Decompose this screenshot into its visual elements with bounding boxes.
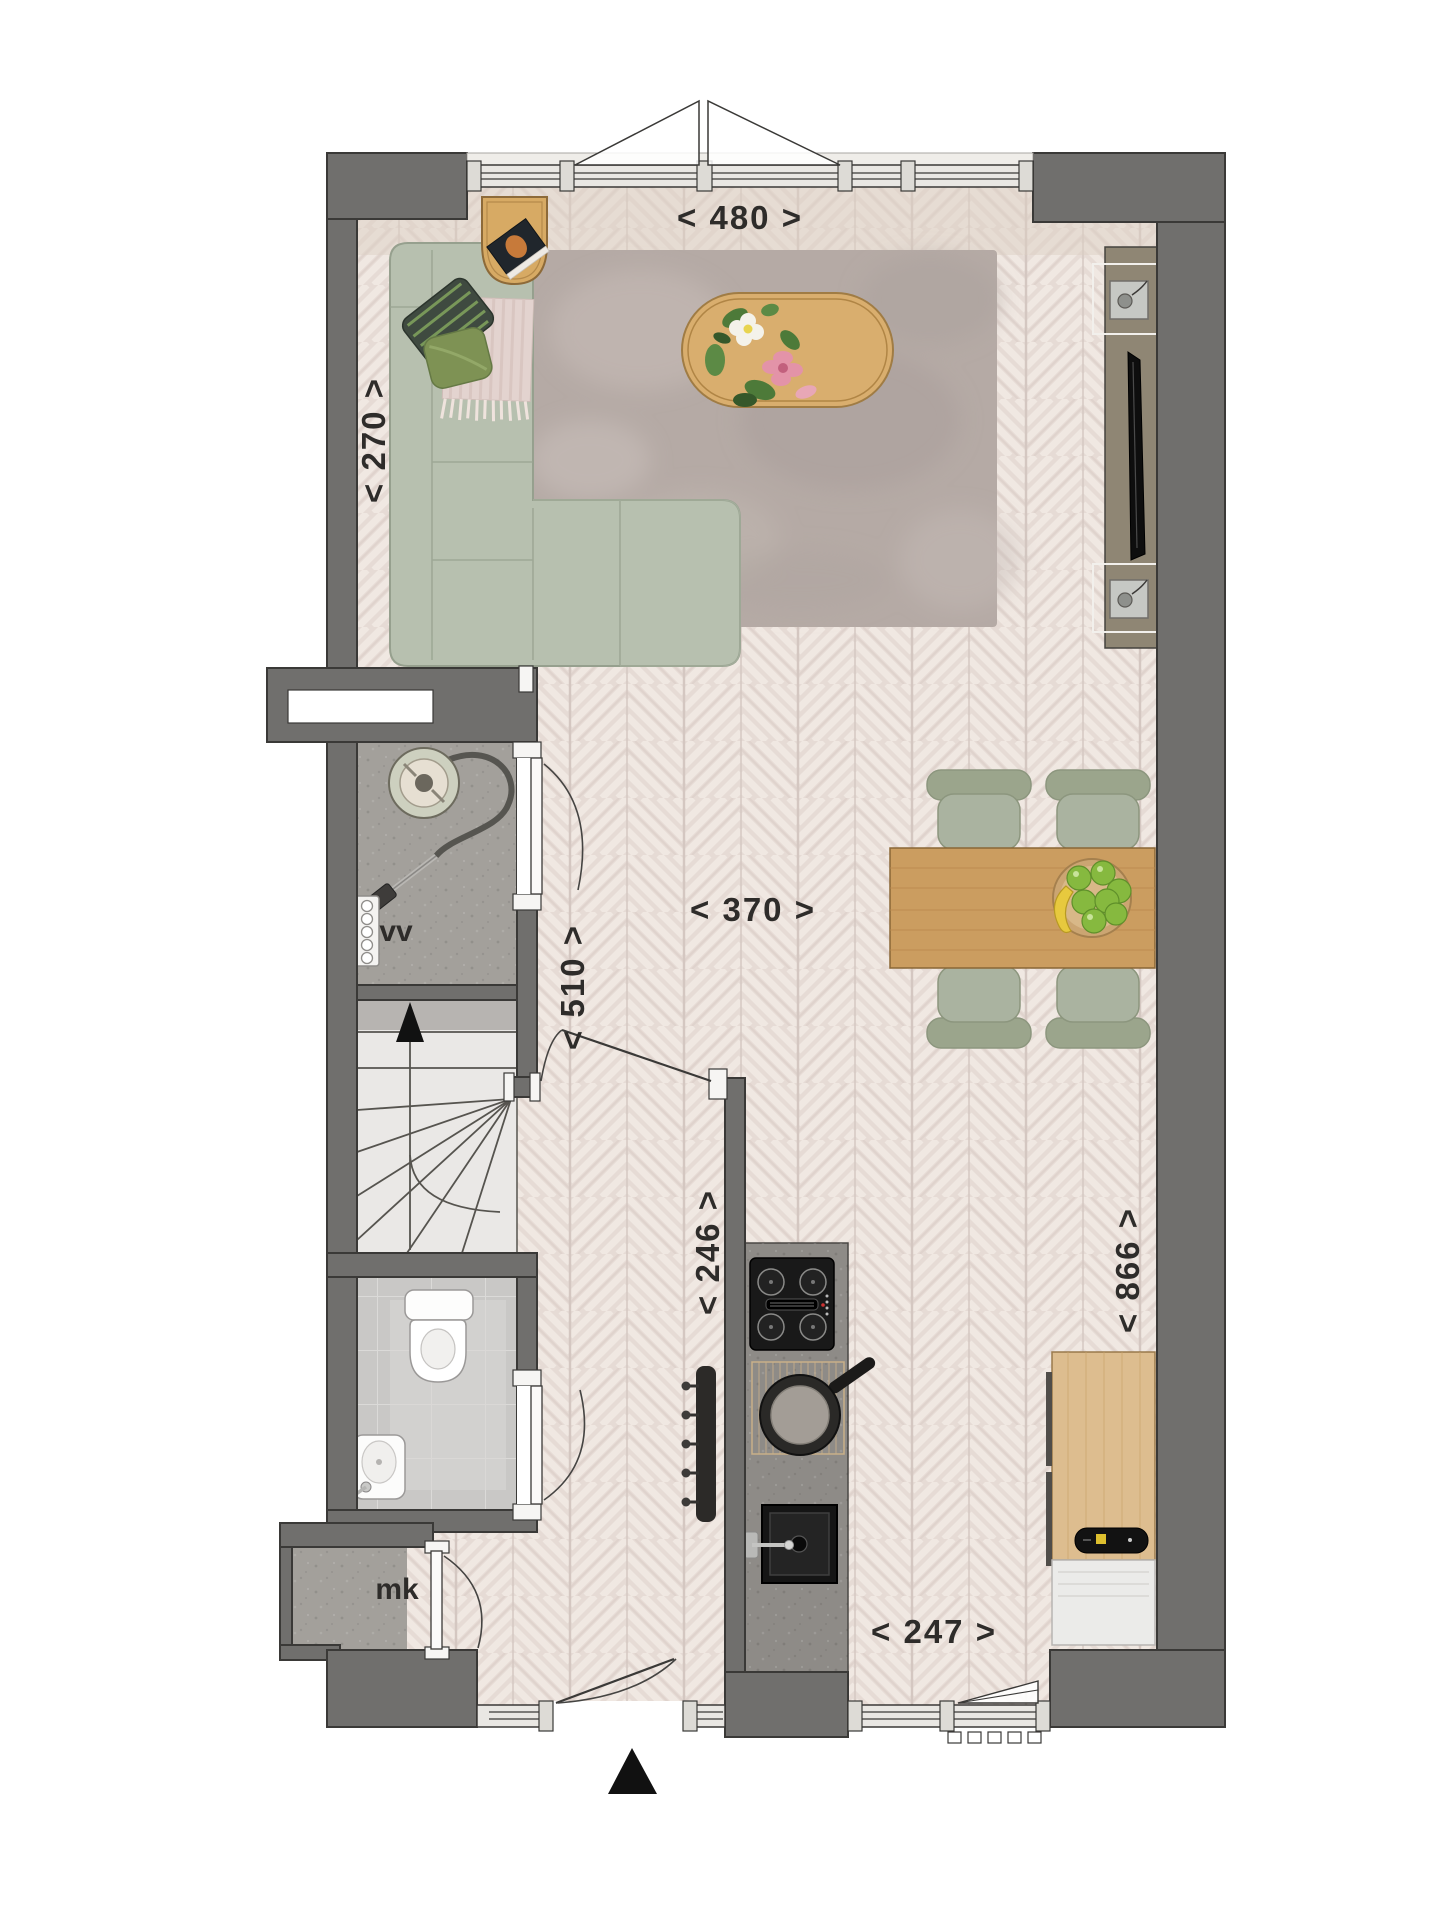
speaker — [1110, 281, 1148, 319]
fruit-bowl — [1053, 859, 1131, 937]
wall-bottom-right-block — [1050, 1650, 1225, 1727]
appliance — [1052, 1560, 1155, 1645]
dimension-kitchen-width: < 246 > — [689, 1189, 727, 1315]
entrance-door-gap — [551, 1701, 685, 1731]
coffee-table — [682, 293, 893, 407]
chair — [1046, 966, 1150, 1048]
toilet — [405, 1290, 473, 1382]
north-arrow — [608, 1748, 657, 1794]
window-band-top — [467, 101, 1033, 191]
meter-panel — [355, 896, 379, 966]
wall-top-left — [327, 153, 467, 219]
side-table — [482, 197, 549, 284]
wall-stairs-toilet — [327, 1253, 537, 1277]
cap-kitchen-wall — [709, 1069, 727, 1099]
floor-plan-page: < 480 > < 270 > < 510 > < 370 > < 246 > … — [0, 0, 1440, 1920]
dimension-top-width: < 480 > — [677, 199, 803, 237]
wall-niche — [288, 690, 433, 723]
coat-rack — [682, 1366, 717, 1522]
dimension-living-depth: < 270 > — [355, 377, 393, 503]
dimension-living-width: < 370 > — [690, 891, 816, 929]
chair — [1046, 770, 1150, 850]
dimension-hall-depth: < 510 > — [554, 924, 592, 1050]
desk-cabinet — [1046, 1352, 1155, 1645]
wall-mk-left — [280, 1547, 292, 1658]
chair — [927, 770, 1031, 850]
cap-living-wall — [519, 666, 533, 692]
wall-storage-stairs — [357, 985, 517, 1000]
dining-table — [890, 848, 1155, 968]
dimension-kitchen-front: < 247 > — [871, 1613, 997, 1651]
wall-kitchen-bottom-block — [725, 1672, 848, 1737]
wall-kitchen — [725, 1078, 745, 1672]
dimension-plan-depth: < 866 > — [1109, 1207, 1147, 1333]
stairs — [357, 1000, 517, 1253]
hand-basin — [352, 1435, 405, 1499]
wall-left — [327, 219, 357, 1532]
room-label-meter-cupboard: mk — [375, 1573, 418, 1607]
chair — [927, 966, 1031, 1048]
wall-top-right — [1033, 153, 1225, 222]
wall-mk-top — [280, 1523, 433, 1547]
wall-bottom-left-block — [327, 1650, 477, 1727]
laptop — [1075, 1528, 1148, 1553]
cooktop — [750, 1258, 834, 1350]
speaker — [1110, 580, 1148, 618]
floor-plan-drawing — [0, 0, 1440, 1920]
room-label-storage: vv — [379, 915, 412, 949]
window-tilt-symbols — [575, 101, 840, 165]
ventilation-grille — [948, 1732, 1041, 1743]
wall-right — [1157, 222, 1225, 1652]
